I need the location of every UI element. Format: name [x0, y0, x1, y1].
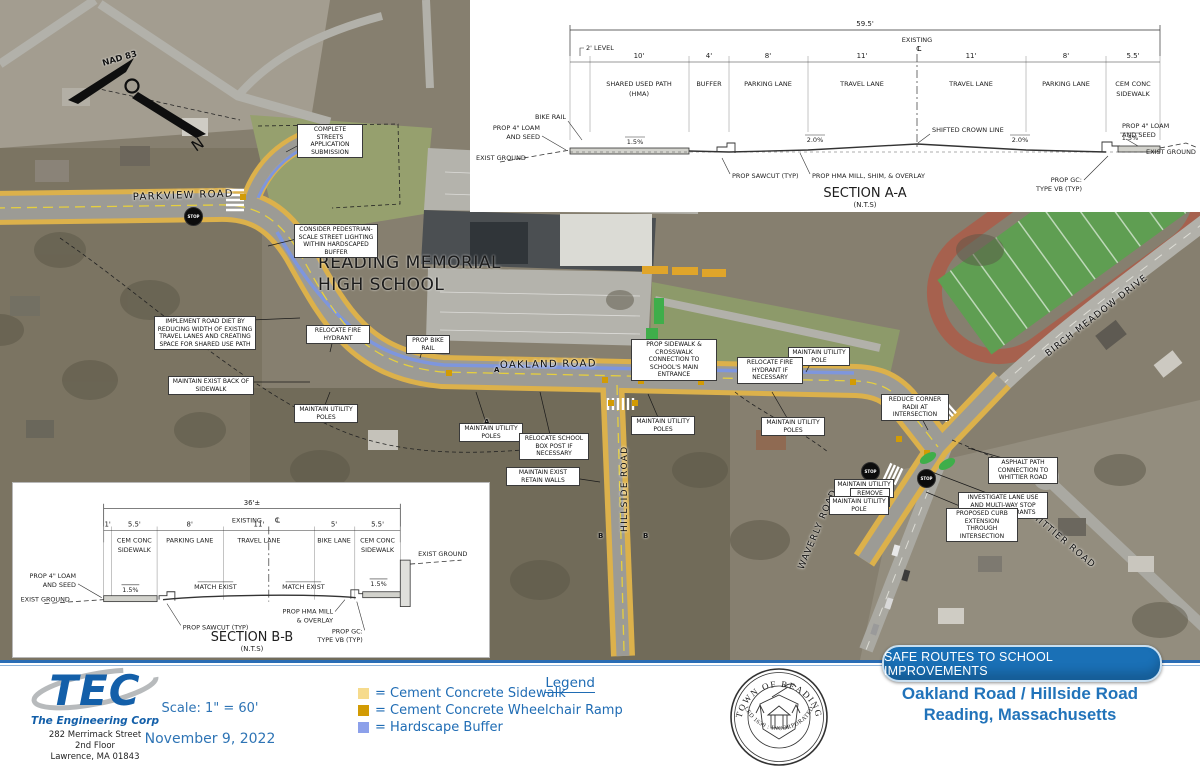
cl-symbol: CL [916, 45, 921, 53]
plan-callout: MAINTAIN UTILITY POLE [829, 496, 889, 515]
svg-text:CEM CONC: CEM CONC [117, 536, 152, 544]
svg-text:MATCH EXIST: MATCH EXIST [282, 583, 325, 591]
plan-callout: RELOCATE FIRE HYDRANT [306, 325, 370, 344]
svg-text:TEC: TEC [49, 667, 140, 715]
section-cut-marker: B [598, 532, 603, 540]
svg-text:1': 1' [104, 521, 110, 529]
plan-callout: RELOCATE FIRE HYDRANT IF NECESSARY [737, 357, 803, 384]
level-label: 2' LEVEL [586, 44, 614, 52]
svg-text:PROP HMA MILL, SHIM, & OVERLAY: PROP HMA MILL, SHIM, & OVERLAY [812, 172, 925, 180]
plan-callout: MAINTAIN UTILITY POLES [761, 417, 825, 436]
svg-text:AND SEED: AND SEED [43, 581, 76, 589]
svg-text:(N.T.S): (N.T.S) [241, 645, 264, 653]
svg-text:SIDEWALK: SIDEWALK [361, 546, 395, 554]
svg-text:& OVERLAY: & OVERLAY [297, 616, 333, 624]
svg-text:SHIFTED CROWN LINE: SHIFTED CROWN LINE [932, 126, 1004, 134]
tec-tagline: The Engineering Corp [20, 715, 170, 727]
legend-label: = Cement Concrete Wheelchair Ramp [375, 703, 623, 718]
svg-text:11': 11' [857, 52, 868, 60]
section-cut-marker: A [494, 366, 499, 374]
svg-text:BUFFER: BUFFER [696, 80, 722, 88]
plan-callout: CONSIDER PEDESTRIAN-SCALE STREET LIGHTIN… [294, 224, 378, 258]
svg-text:AND SEED: AND SEED [506, 133, 540, 141]
svg-text:(HMA): (HMA) [629, 90, 649, 98]
svg-text:1.5%: 1.5% [627, 138, 644, 146]
svg-text:1.5%: 1.5% [122, 586, 138, 594]
svg-text:5': 5' [331, 521, 337, 529]
svg-text:PROP SAWCUT (TYP): PROP SAWCUT (TYP) [732, 172, 799, 180]
svg-text:AND SEED: AND SEED [1122, 131, 1156, 139]
plan-callout: PROP BIKE RAIL [406, 335, 450, 354]
svg-text:CL: CL [275, 517, 280, 525]
svg-text:BIKE LANE: BIKE LANE [317, 536, 351, 544]
town-seal: TOWN OF READING SETTLED 1639 : INCORPORA… [714, 667, 844, 768]
svg-text:11': 11' [966, 52, 977, 60]
plan-callout: MAINTAIN EXIST RETAIN WALLS [506, 467, 580, 486]
svg-text:PROP 4" LOAM: PROP 4" LOAM [30, 572, 77, 580]
scale-label: Scale: 1" = 60' [130, 701, 290, 716]
plan-callout: PROPOSED CURB EXTENSION THROUGH INTERSEC… [946, 508, 1018, 542]
plan-callout: MAINTAIN UTILITY POLES [631, 416, 695, 435]
overall-dim-a: 59.5' [856, 20, 874, 28]
plan-sheet: N READING MEMORIAL HIGH SCHOOL NAD 83 CO… [0, 0, 1200, 768]
svg-text:PROP GC:: PROP GC: [332, 627, 363, 635]
svg-text:EXIST GROUND: EXIST GROUND [418, 550, 467, 558]
legend-title: Legend [505, 675, 595, 691]
svg-text:5.5': 5.5' [371, 521, 384, 529]
svg-text:PROP 4" LOAM: PROP 4" LOAM [493, 124, 540, 132]
svg-text:PROP HMA MILL: PROP HMA MILL [282, 608, 333, 616]
legend-swatch [358, 705, 369, 716]
svg-text:PROP 4" LOAM: PROP 4" LOAM [1122, 122, 1169, 130]
project-title: Oakland Road / Hillside Road Reading, Ma… [878, 683, 1162, 725]
svg-text:8': 8' [187, 521, 193, 529]
svg-text:EXIST GROUND: EXIST GROUND [1146, 148, 1196, 156]
svg-text:11': 11' [254, 521, 265, 529]
svg-text:PARKING LANE: PARKING LANE [1042, 80, 1090, 88]
svg-text:SIDEWALK: SIDEWALK [118, 546, 152, 554]
svg-text:CEM CONC: CEM CONC [1115, 80, 1151, 88]
svg-text:2.0%: 2.0% [1012, 136, 1029, 144]
svg-text:(N.T.S): (N.T.S) [853, 201, 876, 209]
legend-swatch [358, 722, 369, 733]
svg-text:5.5': 5.5' [128, 521, 141, 529]
svg-text:TYPE VB (TYP): TYPE VB (TYP) [1035, 185, 1082, 193]
legend-label: = Hardscape Buffer [375, 720, 503, 735]
overall-dim-b: 36'± [244, 499, 261, 507]
existing-cl-label: EXISTING [902, 36, 932, 44]
plan-callout: REDUCE CORNER RADII AT INTERSECTION [881, 394, 949, 421]
svg-text:2.0%: 2.0% [807, 136, 824, 144]
legend-item: = Cement Concrete Wheelchair Ramp [358, 702, 623, 719]
plan-callout: ASPHALT PATH CONNECTION TO WHITTIER ROAD [988, 457, 1058, 484]
svg-text:TRAVEL LANE: TRAVEL LANE [839, 80, 884, 88]
section-cut-marker: B [643, 532, 648, 540]
project-banner: SAFE ROUTES TO SCHOOL IMPROVEMENTS [882, 645, 1162, 682]
plan-callout: RELOCATE SCHOOL BOX POST IF NECESSARY [519, 433, 589, 460]
section-b-title: SECTION B-B [211, 630, 293, 645]
stop-sign-marker: STOP [917, 469, 936, 488]
svg-text:BIKE RAIL: BIKE RAIL [535, 113, 566, 121]
svg-text:PROP GC:: PROP GC: [1051, 176, 1082, 184]
svg-text:SHARED USED PATH: SHARED USED PATH [606, 80, 672, 88]
svg-text:EXIST GROUND: EXIST GROUND [476, 154, 526, 162]
svg-text:EXIST GROUND: EXIST GROUND [21, 596, 70, 604]
svg-text:4': 4' [706, 52, 712, 60]
legend-swatch [358, 688, 369, 699]
svg-text:TRAVEL LANE: TRAVEL LANE [948, 80, 993, 88]
svg-text:5.5': 5.5' [1126, 52, 1139, 60]
svg-text:CEM CONC: CEM CONC [360, 536, 395, 544]
legend-item: = Hardscape Buffer [358, 719, 623, 736]
svg-text:TYPE VB (TYP): TYPE VB (TYP) [316, 636, 362, 644]
svg-text:10': 10' [634, 52, 645, 60]
street-label: HILLSIDE ROAD [620, 446, 630, 532]
svg-text:PARKING LANE: PARKING LANE [744, 80, 792, 88]
svg-text:SETTLED 1639 : INCORPORATED 16: SETTLED 1639 : INCORPORATED 1644 [714, 667, 816, 732]
section-a-title: SECTION A-A [823, 186, 906, 201]
plan-callout: MAINTAIN EXIST BACK OF SIDEWALK [168, 376, 254, 395]
svg-text:PARKING LANE: PARKING LANE [166, 536, 213, 544]
plan-callout: IMPLEMENT ROAD DIET BY REDUCING WIDTH OF… [154, 316, 256, 350]
street-label: OAKLAND ROAD [500, 358, 597, 371]
section-b-inset: 36'± EXISTING CL 1'5.5' 8'11' 5'5.5' CEM… [12, 482, 490, 658]
svg-text:8': 8' [765, 52, 771, 60]
svg-text:TRAVEL LANE: TRAVEL LANE [236, 536, 280, 544]
svg-text:MATCH EXIST: MATCH EXIST [194, 583, 237, 591]
plan-callout: PROP SIDEWALK & CROSSWALK CONNECTION TO … [631, 339, 717, 381]
plan-callout: MAINTAIN UTILITY POLES [459, 423, 523, 442]
plan-callout: MAINTAIN UTILITY POLES [294, 404, 358, 423]
section-a-inset: 59.5' EXISTING CL 2' LEVEL 10'4' 8'11' 1… [470, 0, 1200, 212]
school-label: READING MEMORIAL HIGH SCHOOL [318, 252, 501, 296]
svg-text:1.5%: 1.5% [370, 580, 386, 588]
stop-sign-marker: STOP [184, 207, 203, 226]
date-label: November 9, 2022 [130, 731, 290, 747]
svg-text:SIDEWALK: SIDEWALK [1116, 90, 1150, 98]
plan-callout: COMPLETE STREETS APPLICATION SUBMISSION [297, 124, 363, 158]
svg-text:8': 8' [1063, 52, 1069, 60]
